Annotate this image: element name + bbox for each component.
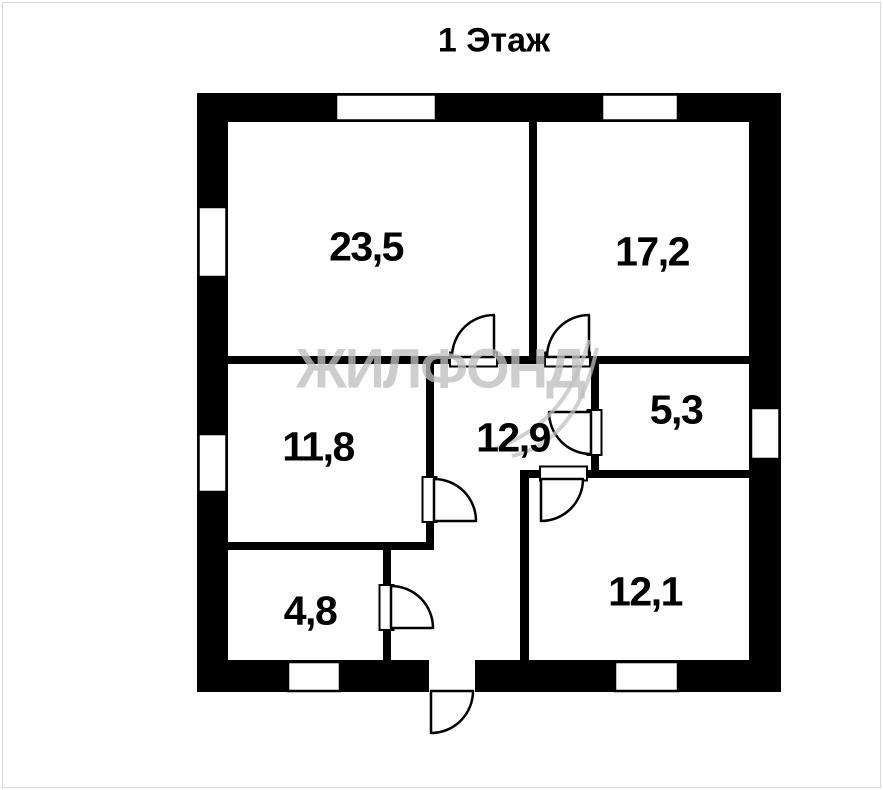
partition-main-horizontal-b bbox=[497, 356, 545, 364]
wall-bottom bbox=[197, 660, 781, 692]
room-area-label-living-room: 23,5 bbox=[329, 224, 403, 271]
partition-hall-bathroom-b bbox=[591, 455, 599, 471]
room-area-label-bedroom2: 11,8 bbox=[282, 424, 354, 471]
partition-storage-right-a bbox=[383, 550, 391, 585]
window-left-upper bbox=[199, 207, 227, 277]
window-top-right bbox=[602, 95, 678, 121]
partition-kitchen-top-a bbox=[520, 470, 540, 478]
partition-bedroom2-hall-a bbox=[426, 364, 434, 477]
door-swing-bedroom2 bbox=[434, 479, 476, 521]
partition-main-horizontal-c bbox=[590, 356, 749, 364]
wall-left bbox=[197, 93, 228, 692]
room-area-label-kitchen: 12,1 bbox=[608, 569, 682, 616]
room-area-label-storage: 4,8 bbox=[284, 588, 337, 635]
wall-right bbox=[749, 93, 781, 692]
floor-title: 1 Этаж bbox=[438, 22, 550, 61]
door-swing-bathroom bbox=[549, 412, 591, 454]
window-bottom-right bbox=[615, 662, 678, 691]
door-swing-bedroom1 bbox=[547, 315, 589, 357]
room-area-label-bedroom1: 17,2 bbox=[615, 229, 689, 276]
room-area-label-hallway: 12,9 bbox=[476, 415, 550, 462]
partition-livingroom-bedroom1 bbox=[529, 122, 537, 360]
partition-kitchen-top-b bbox=[587, 470, 749, 478]
wall-top bbox=[197, 93, 781, 122]
window-bottom-left bbox=[288, 662, 340, 691]
partition-kitchen-left bbox=[520, 470, 529, 661]
window-right bbox=[751, 408, 780, 459]
door-swing-storage bbox=[391, 586, 433, 628]
entrance-opening bbox=[429, 659, 475, 693]
partition-main-horizontal-a bbox=[228, 356, 450, 364]
partition-hall-bathroom-a bbox=[591, 364, 599, 410]
floor-plan-page: 1 Этаж bbox=[0, 0, 883, 790]
door-swing-kitchen bbox=[541, 479, 583, 521]
partition-bedroom2-storage bbox=[228, 542, 434, 550]
window-left-lower bbox=[199, 434, 227, 492]
partition-storage-right-b bbox=[383, 630, 391, 661]
floor-plan-drawing bbox=[0, 0, 883, 790]
room-area-label-bathroom: 5,3 bbox=[650, 387, 703, 434]
window-top-left bbox=[336, 95, 436, 121]
door-swing-entrance bbox=[431, 691, 473, 733]
door-swing-living-room bbox=[452, 315, 494, 357]
